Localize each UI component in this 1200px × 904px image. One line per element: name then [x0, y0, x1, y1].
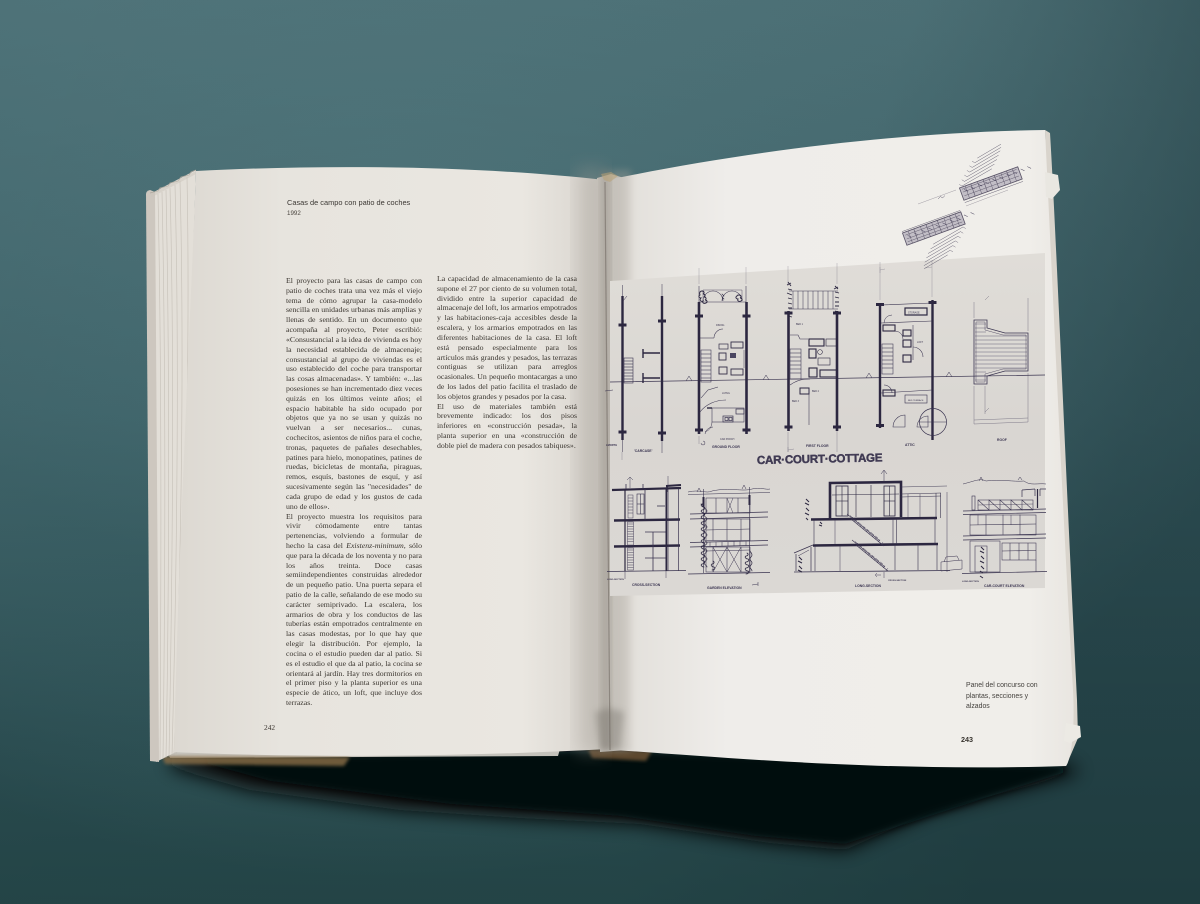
svg-text:LOFT: LOFT: [917, 341, 924, 344]
svg-text:BED TERRACE: BED TERRACE: [908, 399, 924, 402]
svg-text:CAR-COURT ELEVATION: CAR-COURT ELEVATION: [984, 584, 1025, 588]
svg-text:'CARCASE': 'CARCASE': [634, 449, 653, 453]
svg-text:LONG-SECTION: LONG-SECTION: [962, 581, 979, 583]
svg-text:CROSS-SECTION: CROSS-SECTION: [632, 583, 661, 587]
svg-text:LONG-SECTION: LONG-SECTION: [855, 584, 882, 588]
svg-text:GARDEN ELEVATION: GARDEN ELEVATION: [707, 586, 742, 590]
svg-text:BED 1: BED 1: [796, 323, 804, 326]
svg-text:DINING: DINING: [716, 324, 725, 327]
svg-text:LMORTH: LMORTH: [606, 443, 617, 447]
svg-text:BED 2: BED 2: [812, 390, 820, 393]
svg-text:LONG-SECTION: LONG-SECTION: [607, 579, 624, 581]
svg-text:CROSS-SECTION: CROSS-SECTION: [888, 580, 907, 582]
svg-text:FIRST FLOOR: FIRST FLOOR: [806, 444, 829, 448]
svg-text:STORAGE: STORAGE: [908, 312, 920, 315]
svg-text:GROUND FLOOR: GROUND FLOOR: [712, 445, 740, 449]
svg-text:CAR PORCH: CAR PORCH: [720, 438, 735, 441]
svg-text:BED 3: BED 3: [792, 400, 800, 403]
svg-text:ROOF: ROOF: [997, 438, 1007, 442]
svg-text:LIVING: LIVING: [722, 392, 730, 395]
svg-text:ATTIC: ATTIC: [905, 443, 915, 447]
